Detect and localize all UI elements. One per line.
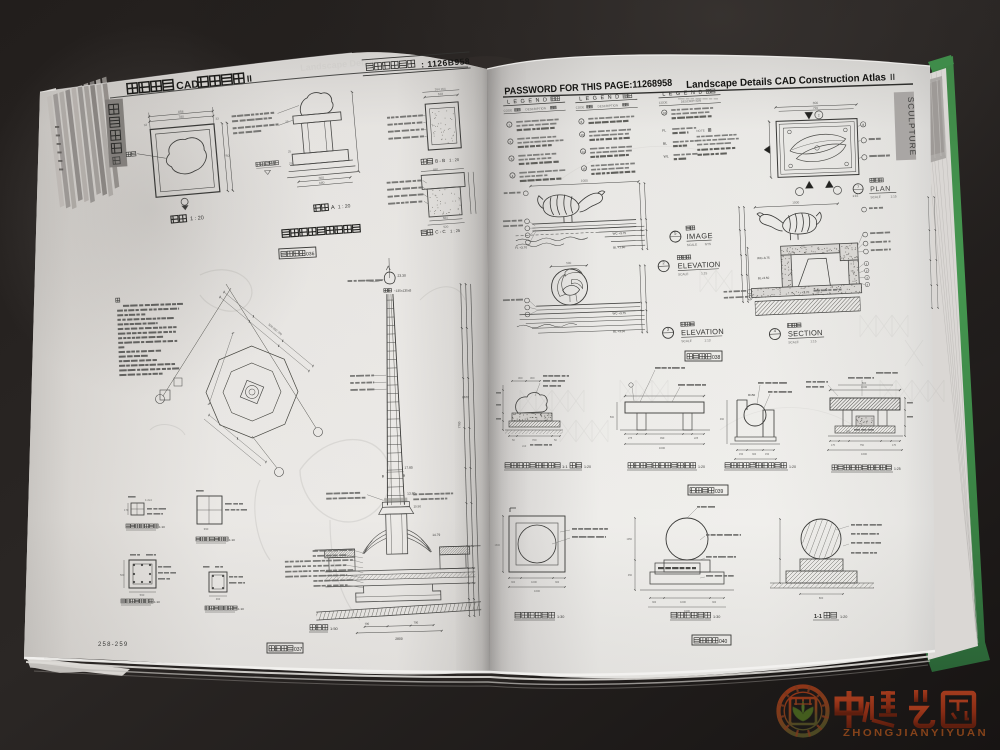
svg-text:750: 750 <box>860 444 865 447</box>
svg-text:1:20: 1:20 <box>584 465 591 469</box>
svg-text:300: 300 <box>555 581 560 584</box>
svg-text:WC +3.75: WC +3.75 <box>612 311 626 315</box>
svg-text:1:15: 1:15 <box>810 339 817 343</box>
svg-text:300: 300 <box>530 376 535 380</box>
svg-text:1:30: 1:30 <box>557 615 564 619</box>
svg-text:037: 037 <box>294 647 303 653</box>
svg-text:14: 14 <box>581 150 585 154</box>
svg-text:1600: 1600 <box>861 452 867 456</box>
svg-text:750: 750 <box>224 154 230 158</box>
svg-text:040: 040 <box>719 639 728 645</box>
svg-text:NTS: NTS <box>705 242 712 246</box>
svg-text:450: 450 <box>628 574 633 577</box>
svg-text:999: 999 <box>660 436 665 440</box>
svg-text:SCALE: SCALE <box>870 195 881 199</box>
svg-text:700: 700 <box>532 438 537 442</box>
svg-text:1:20: 1:20 <box>840 615 847 619</box>
svg-text:1:30: 1:30 <box>713 615 720 619</box>
svg-text:300: 300 <box>518 376 523 380</box>
svg-text:NOTE: NOTE <box>696 129 705 133</box>
svg-text:SCALE: SCALE <box>788 340 799 344</box>
svg-text:15.50: 15.50 <box>413 504 421 508</box>
svg-text:680: 680 <box>319 181 325 185</box>
svg-text:700: 700 <box>364 622 369 626</box>
svg-text:15: 15 <box>582 167 586 171</box>
svg-text:23.30: 23.30 <box>397 274 406 278</box>
svg-text:858: 858 <box>178 110 184 114</box>
svg-text:FL +3.70: FL +3.70 <box>515 245 527 250</box>
svg-text:1:50: 1:50 <box>330 626 339 631</box>
svg-text:2800: 2800 <box>395 637 403 641</box>
svg-text:1:15: 1:15 <box>890 194 897 198</box>
svg-text:1:10: 1:10 <box>238 607 244 611</box>
svg-text:170: 170 <box>124 508 129 512</box>
svg-text:258-259: 258-259 <box>98 642 128 648</box>
svg-text:1: 1 <box>857 184 859 188</box>
svg-text:1 : 20: 1 : 20 <box>338 203 351 210</box>
svg-text:1000: 1000 <box>792 200 799 204</box>
svg-text:628: 628 <box>438 92 444 96</box>
svg-text:800: 800 <box>862 381 867 385</box>
svg-text:1:20: 1:20 <box>789 465 796 469</box>
svg-text:1:10: 1:10 <box>159 525 165 529</box>
svg-text:780: 780 <box>178 115 184 119</box>
svg-text:500: 500 <box>610 416 615 419</box>
svg-text:1:25: 1:25 <box>894 467 901 471</box>
svg-text:300: 300 <box>511 581 516 584</box>
svg-text:1:10: 1:10 <box>229 538 235 542</box>
svg-text:PLAN: PLAN <box>870 186 891 194</box>
svg-text:1600: 1600 <box>659 446 666 450</box>
svg-text:700: 700 <box>413 620 418 624</box>
svg-text:C - C: C - C <box>435 229 447 235</box>
svg-text:7700: 7700 <box>457 421 461 428</box>
svg-text:CODE: CODE <box>659 100 668 104</box>
svg-text:BL +1.60: BL +1.60 <box>613 245 625 250</box>
svg-text:300: 300 <box>752 453 757 456</box>
svg-text:1:1: 1:1 <box>562 464 568 469</box>
svg-text:275: 275 <box>628 437 633 440</box>
svg-text:500: 500 <box>566 261 571 265</box>
svg-text:c10: c10 <box>522 444 527 448</box>
svg-text:1600: 1600 <box>494 544 500 547</box>
svg-text:SCALE: SCALE <box>681 339 692 343</box>
svg-text:WL: WL <box>664 154 669 158</box>
svg-text:1 : 20: 1 : 20 <box>449 157 460 163</box>
svg-text:16: 16 <box>663 111 667 115</box>
svg-text:720: 720 <box>813 106 818 110</box>
svg-text:14.79: 14.79 <box>432 533 440 537</box>
svg-text:8670: 8670 <box>462 395 469 399</box>
svg-text:1:15: 1:15 <box>701 271 708 275</box>
svg-text:1:20: 1:20 <box>698 465 705 469</box>
svg-text:225: 225 <box>694 437 699 440</box>
svg-text:1000: 1000 <box>680 600 686 604</box>
svg-text:264 164: 264 164 <box>435 87 446 92</box>
svg-text:1 : 25: 1 : 25 <box>450 228 461 234</box>
svg-text:R150: R150 <box>748 393 756 397</box>
svg-text:SCALE: SCALE <box>687 243 698 247</box>
svg-text:150: 150 <box>739 453 744 456</box>
svg-text:BL: BL <box>663 141 667 145</box>
svg-text:c10: c10 <box>846 430 851 433</box>
svg-text:IMAGE: IMAGE <box>686 231 713 241</box>
svg-text:SCALE: SCALE <box>678 272 689 276</box>
svg-text:17.80: 17.80 <box>404 466 413 470</box>
svg-text:1:15: 1:15 <box>852 194 858 198</box>
svg-text:390: 390 <box>204 527 209 531</box>
svg-text:1:10: 1:10 <box>154 600 160 604</box>
svg-text:CODE: CODE <box>576 105 585 109</box>
svg-text:II: II <box>246 73 252 83</box>
svg-text:150: 150 <box>765 453 770 456</box>
svg-text:460: 460 <box>720 418 725 421</box>
svg-text:684: 684 <box>443 216 449 220</box>
svg-text:1:13: 1:13 <box>704 338 711 342</box>
svg-text:036: 036 <box>306 251 315 257</box>
svg-text:175: 175 <box>831 444 836 447</box>
svg-text:800: 800 <box>819 596 824 600</box>
svg-text:1000: 1000 <box>531 580 537 584</box>
svg-text:175: 175 <box>892 444 897 447</box>
svg-text:660: 660 <box>318 176 324 180</box>
svg-text:BL+3.50: BL+3.50 <box>758 276 770 281</box>
svg-text:560: 560 <box>140 593 145 597</box>
svg-text:1:2x4: 1:2x4 <box>145 498 152 502</box>
svg-text:~135x135x8: ~135x135x8 <box>394 288 412 292</box>
svg-text:ELEVATION: ELEVATION <box>681 327 724 337</box>
svg-text:CODE: CODE <box>503 108 512 113</box>
svg-text:+3.70: +3.70 <box>802 290 810 294</box>
svg-text:1050: 1050 <box>626 538 632 541</box>
svg-text:1600: 1600 <box>534 589 540 593</box>
svg-text:WC +3.75: WC +3.75 <box>613 231 627 236</box>
svg-text:10: 10 <box>580 133 584 137</box>
svg-text:WC+3.75: WC+3.75 <box>757 256 770 261</box>
svg-text:BL +3.50: BL +3.50 <box>613 329 625 333</box>
svg-text:B - B: B - B <box>435 158 445 164</box>
svg-text:300: 300 <box>652 601 657 604</box>
svg-text:1 : 20: 1 : 20 <box>190 215 204 222</box>
svg-text:460: 460 <box>216 597 221 601</box>
svg-text:300: 300 <box>712 601 717 604</box>
svg-text:ZHONGJIANYIYUAN: ZHONGJIANYIYUAN <box>843 727 988 739</box>
svg-text:II: II <box>890 72 895 82</box>
svg-text:1000: 1000 <box>581 179 588 183</box>
svg-text:480: 480 <box>433 167 439 171</box>
svg-text:039: 039 <box>715 489 724 495</box>
svg-text:800: 800 <box>813 101 819 105</box>
svg-text:1-1: 1-1 <box>814 614 822 620</box>
svg-text:560: 560 <box>120 573 125 577</box>
svg-text:038: 038 <box>712 355 721 361</box>
svg-text:FL: FL <box>662 129 666 133</box>
